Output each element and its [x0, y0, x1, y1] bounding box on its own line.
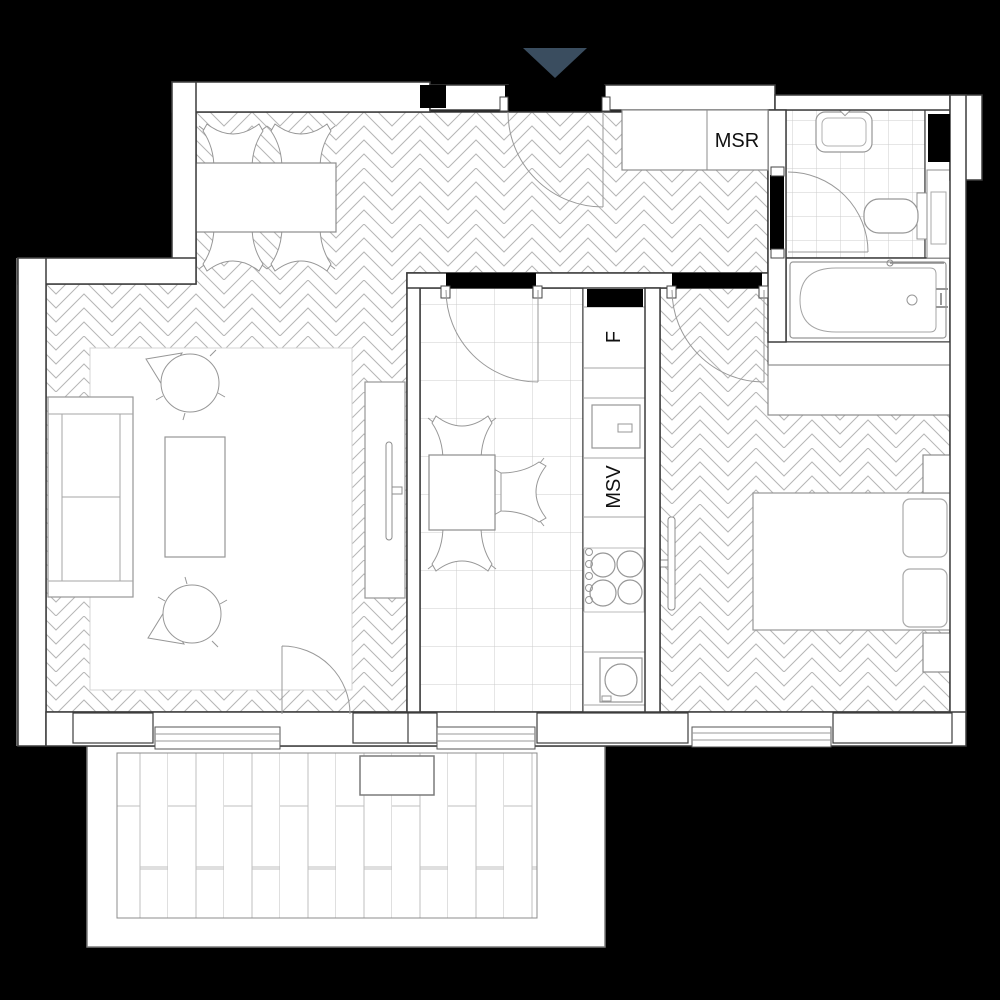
entrance-door-opening: [505, 85, 605, 110]
bathroom-shaft: [928, 114, 950, 162]
bedroom-door-opening: [672, 273, 762, 288]
nightstand: [923, 455, 952, 493]
bedroom-window: [692, 727, 831, 747]
wall-nook-left: [172, 82, 196, 265]
windows: [155, 727, 831, 749]
pillow: [903, 499, 947, 557]
toilet: [864, 193, 931, 239]
wall-pier-dark: [420, 85, 446, 108]
closet-label: MSR: [715, 130, 759, 152]
living-room-window: [155, 727, 280, 749]
wardrobe: [768, 365, 950, 415]
wall-top-left: [172, 82, 430, 112]
kitchen-table: [429, 455, 495, 530]
tv-bracket: [392, 487, 402, 494]
washbasin: [816, 104, 872, 152]
kitchen-sink: [600, 658, 642, 702]
kitchen-door-opening: [446, 273, 536, 288]
sofa: [48, 397, 133, 597]
wall-top-entry-right: [605, 85, 775, 110]
kitchen-shaft: [587, 289, 643, 307]
wall-left: [18, 258, 46, 746]
wall-right: [950, 95, 966, 715]
stove: [584, 548, 644, 612]
wall-kitchen-bedroom: [645, 288, 660, 712]
toilet-bowl: [864, 199, 918, 233]
bathroom: [786, 104, 950, 342]
nightstand: [923, 633, 951, 672]
wall-bath-bedroom: [768, 342, 966, 366]
wall-top-bathroom: [775, 95, 966, 110]
pillow: [903, 569, 947, 627]
ventilation-label: MSV: [603, 465, 625, 509]
floor-plan: MSR F MSV: [0, 0, 1000, 1000]
kitchen-window: [437, 727, 535, 749]
balcony-decking: [117, 753, 537, 918]
living-room-furniture: [48, 348, 405, 690]
bathroom-cabinet: [927, 170, 950, 258]
bathroom-door-opening: [770, 175, 784, 250]
bedroom-tv: [668, 517, 675, 610]
living-tv: [386, 442, 392, 540]
fridge-label: F: [603, 331, 625, 343]
dining-table: [196, 163, 336, 232]
balcony-table: [360, 756, 434, 795]
tv-bracket: [660, 560, 668, 567]
oven: [592, 405, 640, 448]
bathtub: [790, 260, 948, 338]
wall-kitchen-left: [407, 273, 420, 712]
balcony: [87, 746, 605, 947]
coffee-table: [165, 437, 225, 557]
floor-plan-canvas: MSR F MSV: [0, 0, 1000, 1000]
